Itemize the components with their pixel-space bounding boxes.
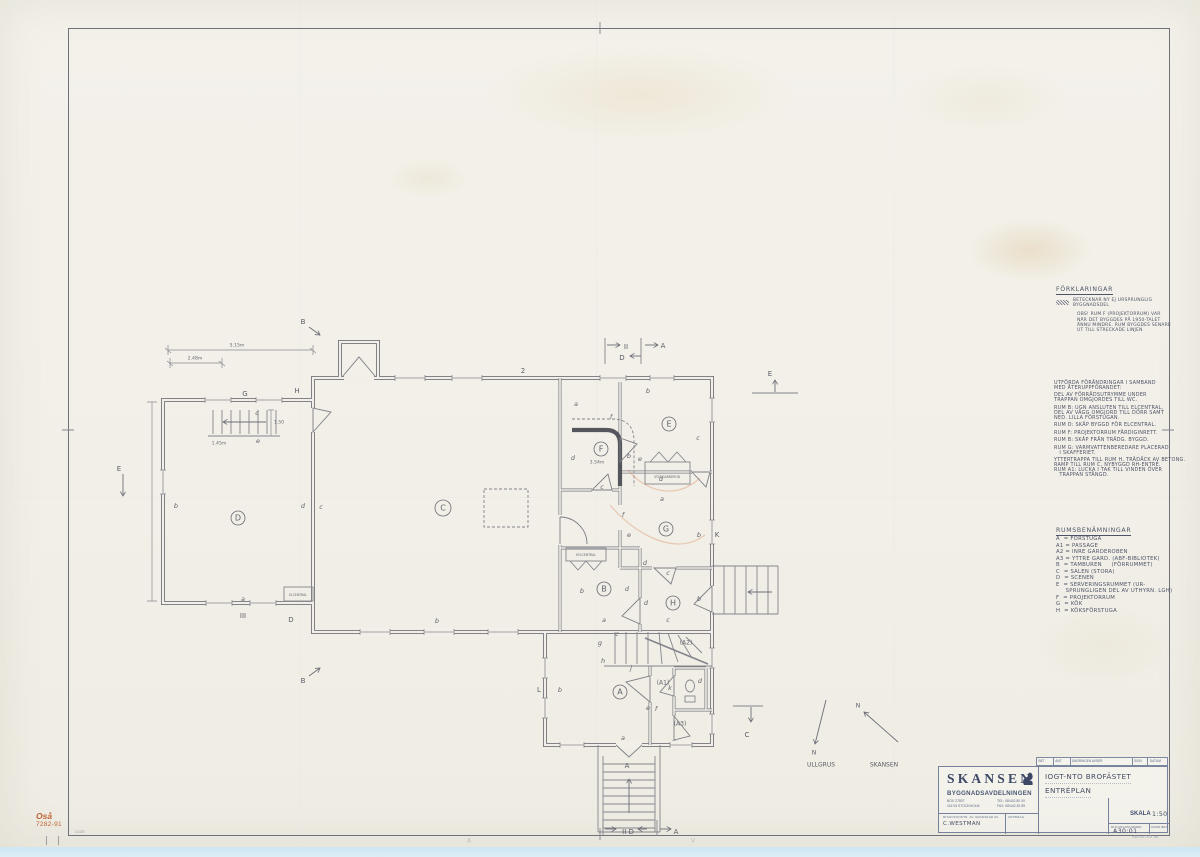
paper-brand-note: VELVETEX 98 [1132,835,1159,839]
fold-letters: AV [467,838,696,845]
floor-plan: DCFEGBHA (A1)(A2)(A3) bceadcbbafdbecdacf… [0,0,1200,857]
section-letter: A [625,762,630,770]
wall-tag: e [256,437,260,445]
closet-label: STÄDGARDEROB [654,474,680,479]
section-letter: 2 [521,367,525,375]
address-city: 115 93 STOCKHOLM [947,804,979,808]
section-letter: D [288,616,293,624]
scanned-drawing-page: { "corner_stamp": { "line1": "Oså", "lin… [0,0,1200,857]
scale-label: SKALA [1130,811,1151,817]
wall-tag: c [319,503,323,511]
rev-col-ant: ANT [1054,758,1071,765]
wall-tag: d [625,585,630,593]
corner-tick [46,836,47,845]
interior-winder-stair [604,632,712,666]
wall-tag: a [574,400,578,408]
north-place-label: ULLGRUS [807,762,835,769]
wall-tag: a [241,595,245,603]
legend-note-title: FÖRKLARINGAR [1056,286,1113,295]
section-letter: E [768,370,772,378]
wc-toilet [685,680,695,702]
drawing-title-line1: IOGT-NTO BROFÄSTET [1045,772,1131,784]
room-label: B [601,585,607,594]
changes-note: UTFÖRDA FÖRÄNDRINGAR I SAMBANDMED ÅTERUP… [1054,381,1196,478]
corner-tick [58,836,59,845]
new-wall-hatch-symbol [1056,300,1069,305]
dimension-label: 1.50 [274,420,284,426]
fax-number: FAX: 08/442 82 89 [997,804,1025,808]
stamp-line1: Oså [36,812,62,821]
wall-tag: a [602,616,606,624]
label-uppdrag: UPPDRAG [1008,815,1024,819]
fold-letter: A [467,838,472,845]
room-label: G [663,525,669,534]
wall-tag: d [644,599,649,607]
wall-tag: e [638,455,642,463]
section-letter: E [117,465,121,473]
wall-tag: b [697,595,701,603]
north-letter: N [856,703,861,710]
dimension-label: 1.45m [212,441,227,447]
wall-tag: b [646,387,650,395]
section-letter: A [674,828,679,836]
room-label: E [666,420,671,429]
room-label: D [235,514,241,523]
legend-note: FÖRKLARINGAR BETECKNAR NY EJ URSPRUNGLIG… [1056,276,1188,334]
wall-tag: a [660,495,664,503]
wall-tag: e [627,531,631,539]
room-label: C [440,504,446,513]
registration-ticks [62,22,1174,840]
titleblock-rule [939,813,1038,814]
label-checked-by: GRANSKAD AV [975,815,998,819]
wall-tag: f [610,413,614,421]
archive-stamp: Oså 7282-91 [36,812,62,828]
wall-tag: c [666,569,670,577]
obs-line: UT TILL STRECKADE LINJEN [1077,328,1188,333]
window-openings [159,374,716,749]
changes-lines: UTFÖRDA FÖRÄNDRINGAR I SAMBANDMED ÅTERUP… [1054,381,1196,478]
wall-tag: b [174,502,178,510]
section-letter: II [624,343,628,351]
titleblock-rule [1005,813,1006,834]
sub-room-label: (A2) [680,640,693,647]
room-label: A [617,688,623,697]
titleblock-divider [1038,767,1039,834]
new-wall-room-f [572,430,620,486]
titleblock-rule [1108,798,1109,834]
section-letter: B [301,318,306,326]
sub-room-label: (A3) [674,721,687,728]
department-name: BYGGNADSAVDELNINGEN [947,790,1032,797]
andr-bet-label: ÄNDR.BET [1151,825,1168,829]
drawing-title-line2: ENTRÉPLAN [1045,786,1091,798]
dimension-labels: 5.15m2.48m1.45m1.503.54m [188,343,605,466]
wall-tag: a [621,734,625,742]
section-letter: K [715,531,720,539]
drawing-number-value: A30:01 [1113,828,1137,835]
address-box: BOX 27807 [947,799,965,803]
wall-tag: d [643,559,648,567]
red-pencil-marks [610,470,705,544]
room-legend-note: RUMSBENÄMNINGAR A = FÖRSTUGAA1 = PASSAGE… [1056,517,1194,614]
label-drawn-by: RITAD/KONSTR. AV [943,815,974,819]
room-label-circles [231,417,680,699]
closet-label: ELCENTRAL [289,593,307,597]
room-label: H [670,599,676,608]
built-in-closets [284,452,690,601]
changes-line: TRAPPAN STÄNGD. [1054,473,1196,478]
hatch-caption-line: BYGGNADSDEL [1073,304,1152,309]
section-letters: BBEIIADEKLCAGHIIIDII DA2 [117,318,772,836]
room-legend-lines: A = FÖRSTUGAA1 = PASSAGEA2 = INRE GARDER… [1056,536,1194,614]
title-block: SKANSEN BYGGNADSAVDELNINGEN BOX 27807 11… [938,766,1168,833]
wall-tag: e [646,704,650,712]
rev-col-datum: DATUM [1148,758,1167,765]
wall-tag: c [696,434,700,442]
rev-col-avser: ÄNDRINGEN AVSER [1071,758,1133,765]
room-labels: DCFEGBHA [235,420,676,697]
wall-tag: c [255,409,259,417]
wall-tag: b [435,617,439,625]
room-label: F [599,445,604,454]
closet-label: KYLCENTRAL [576,553,596,557]
room-legend-line: H = KÖKSFÖRSTUGA [1056,608,1194,615]
section-letter: L [537,686,541,694]
north-place-label: SKANSEN [870,762,898,769]
wall-tag: k [668,684,672,692]
stamp-line2: 7282-91 [36,821,62,828]
section-letter: C [745,731,750,739]
wall-tag: f [622,511,626,519]
obs-paragraph: OBS! RUM F (PROJEKTORRUM) VARNÄR DET BYG… [1077,312,1188,333]
dimension-label: 5.15m [230,343,245,349]
dimension-label: 2.48m [188,356,203,362]
dimension-label: 3.54m [590,460,605,466]
wall-tag: b [697,531,701,539]
scale-value: 1:50 [1152,811,1168,818]
fold-letter: V [691,838,696,845]
hatch-caption: BETECKNAR NY EJ URSPRUNGLIGBYGGNADSDEL [1073,299,1152,308]
door-openings [309,374,716,749]
door-leaves [313,357,712,757]
wall-tag: d [301,502,306,510]
wall-tag: b [580,587,584,595]
dashed-ceiling-mark [484,489,528,527]
wall-tag: g [598,639,602,647]
dimension-lines [147,345,316,601]
section-letter: G [242,390,247,398]
wall-tag: h [601,657,605,665]
wall-tag: b [627,452,631,460]
section-letter: II D [622,828,634,836]
drawn-by-signature: C.WESTMAN [943,821,981,827]
section-letter: H [294,387,299,395]
revision-table-header: BET ANT ÄNDRINGEN AVSER SIGN DATUM [1036,757,1168,766]
wall-tag: c [666,616,670,624]
wall-tag: b [558,686,562,694]
section-letter: B [301,677,306,685]
north-place-labels: ULLGRUSSKANSEN [807,762,898,769]
wall-tag: c [615,630,619,638]
squirrel-icon [1020,770,1035,792]
wall-tag: c [600,483,604,491]
rev-col-bet: BET [1037,758,1054,765]
wall-tags: bceadcbbafdbecdacfebdcbddbkdefabgchjca [174,387,703,742]
titleblock-rule [1149,823,1150,834]
room-legend-title: RUMSBENÄMNINGAR [1056,527,1131,536]
wall-tag: d [698,677,703,685]
stage-wing-stair [208,410,280,436]
wall-tag: d [571,454,576,462]
rev-col-sign: SIGN [1133,758,1149,765]
micro-number: 211387 [75,830,86,834]
wall-tag: f [655,705,659,713]
east-exterior-stair [712,566,778,614]
north-letter: N [812,750,817,757]
section-letter: III [240,612,246,620]
section-letter: A [661,342,666,350]
section-letter: D [619,354,624,362]
wall-tag: j [629,664,632,672]
phone-number: TEL: 08/442 80 00 [997,799,1025,803]
